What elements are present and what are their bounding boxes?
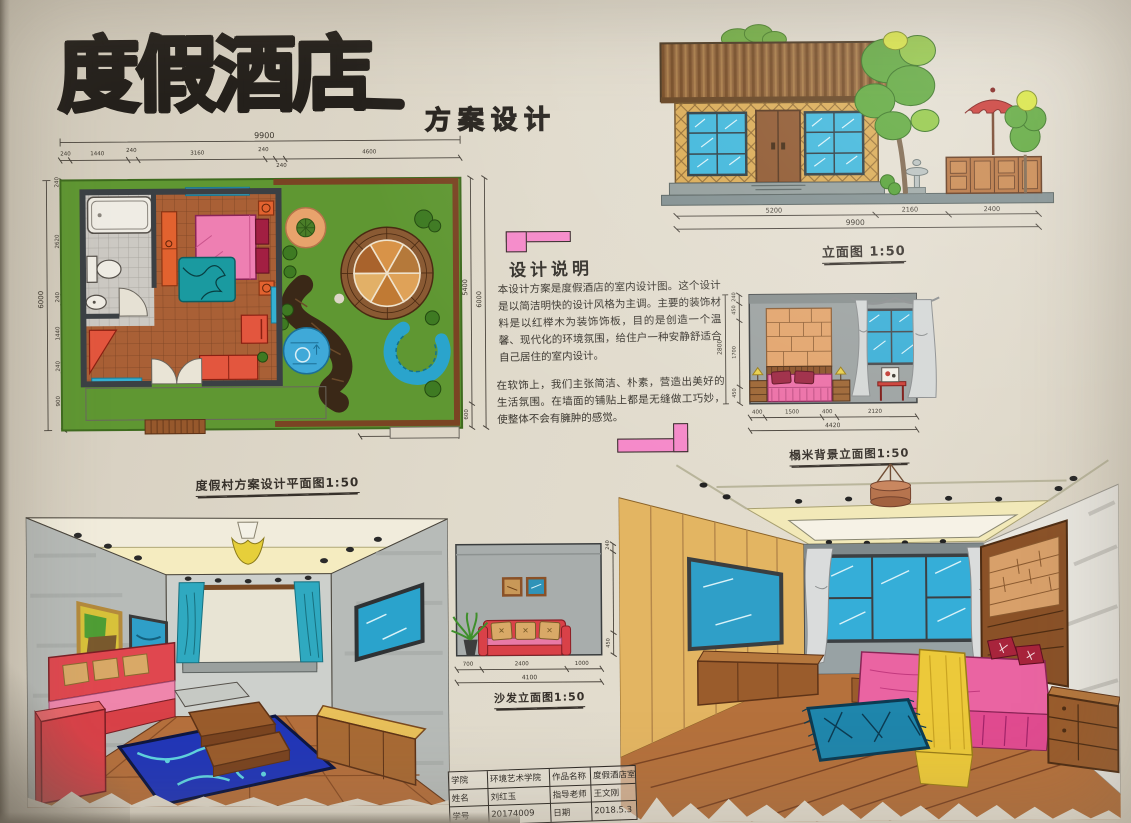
- corner-shadow: [0, 640, 130, 823]
- pendant-lamp: [870, 464, 910, 507]
- dim-label: 2400: [984, 205, 1001, 213]
- sofa: [478, 620, 570, 656]
- dim-label: 600: [464, 409, 470, 420]
- dim-label: 2160: [902, 206, 919, 214]
- dim-label: 240: [605, 540, 611, 550]
- plinth: [669, 182, 884, 196]
- sofa-elevation-caption: 沙发立面图1:50: [494, 688, 586, 709]
- design-notes-paragraph-1: 本设计方案是度假酒店的室内设计图。这个设计是以简洁明快的设计风格为主调。主要的装…: [498, 277, 723, 367]
- dim-label: 240: [126, 148, 137, 154]
- window-right: [805, 112, 863, 174]
- picture-frame-left: [503, 578, 521, 595]
- dim-label: 1440: [90, 151, 105, 157]
- ground-strip: [661, 193, 1053, 206]
- dim-label: 1700: [732, 346, 738, 359]
- pink-block: [506, 231, 527, 252]
- hut: [660, 24, 891, 196]
- dim-label: 6000: [37, 291, 45, 309]
- dim-label: 2800: [717, 339, 724, 355]
- dim-label: 9900: [846, 218, 865, 227]
- dim-label: 240: [60, 151, 71, 157]
- bedroom-perspective-drawing: [618, 454, 1121, 822]
- wood-walkway: [145, 420, 205, 434]
- double-door: [756, 110, 801, 182]
- bed: [768, 370, 832, 401]
- fountain: [906, 159, 928, 193]
- garden-path-stone: [334, 294, 344, 304]
- garden-patio-circle: [341, 227, 434, 320]
- dim-label: 2120: [868, 409, 883, 415]
- window-left: [688, 113, 746, 175]
- dim-label: 9900: [254, 131, 274, 140]
- back-window: [176, 582, 323, 673]
- back-window: [819, 555, 980, 641]
- building-elevation-dimensions: 5200 2160 2400 9900: [674, 205, 1042, 233]
- pink-block: [673, 423, 688, 452]
- dim-label: 2400: [515, 661, 530, 667]
- title-dash-stroke: [361, 98, 405, 110]
- building-elevation-caption: 立面图 1:50: [822, 240, 906, 264]
- dim-label: 4100: [522, 674, 538, 681]
- garden-planter-circle: [286, 208, 326, 248]
- dim-label: 4420: [825, 422, 841, 429]
- interior-elevation-drawing: 2800 240 450 1700 450 400 1500 400 2120 …: [691, 269, 984, 466]
- paper-sheet: 度假酒店 方案设计 9900 240 1440 240 3160 240 240…: [0, 0, 1131, 823]
- dim-label: 1000: [575, 661, 590, 667]
- title-block-value: 刘红玉: [488, 787, 551, 807]
- floor-plan-drawing: 9900 240 1440 240 3160 240 240 4600 6000…: [18, 125, 511, 508]
- dim-label: 240: [276, 163, 287, 169]
- dim-label: 450: [731, 305, 737, 315]
- title-block-label: 学院: [449, 771, 489, 790]
- timber-roof: [660, 42, 890, 102]
- dim-label: 400: [752, 410, 763, 416]
- dim-label: 450: [606, 638, 612, 648]
- picture-frame-right: [527, 578, 545, 595]
- stone-headboard-panel: [766, 308, 832, 380]
- pink-accent-top: [506, 231, 572, 254]
- garden-pond: [283, 328, 329, 374]
- dim-label: 400: [822, 409, 833, 415]
- dim-label: 240: [258, 147, 269, 153]
- title-block-label: 姓名: [449, 789, 489, 808]
- title-block-value: 度假酒店室内设计: [591, 766, 636, 785]
- dim-label: 1500: [785, 409, 800, 415]
- dim-label: 240: [731, 292, 737, 302]
- wall-trim: [456, 554, 601, 555]
- dim-label: 5400: [461, 279, 469, 296]
- photo-of-design-board: 度假酒店 方案设计 9900 240 1440 240 3160 240 240…: [0, 0, 1131, 823]
- title-block-label: 日期: [551, 803, 593, 822]
- outdoor-cabinet: [946, 157, 1041, 194]
- title-block-value: 环境艺术学院: [488, 769, 551, 789]
- board-title: 度假酒店: [57, 7, 370, 128]
- dim-label: 6000: [475, 291, 483, 308]
- design-notes-heading: 设计说明: [509, 254, 594, 281]
- dim-label: 450: [732, 388, 738, 398]
- dim-label: 4600: [362, 149, 377, 155]
- dim-label: 3160: [190, 151, 205, 157]
- building-elevation-drawing: 5200 2160 2400 9900: [652, 4, 1074, 252]
- tv-screen-left: [689, 558, 782, 649]
- title-block-value: 王文刚: [591, 784, 636, 803]
- title-block-label: 指导老师: [550, 785, 592, 804]
- dim-label: 700: [463, 662, 474, 668]
- title-block-label: 作品名称: [550, 767, 592, 786]
- dim-label: 5200: [766, 206, 783, 214]
- pink-accent-bottom: [617, 423, 689, 454]
- right-dresser: [1048, 686, 1121, 773]
- title-block-value: 2018.5.3: [592, 801, 637, 820]
